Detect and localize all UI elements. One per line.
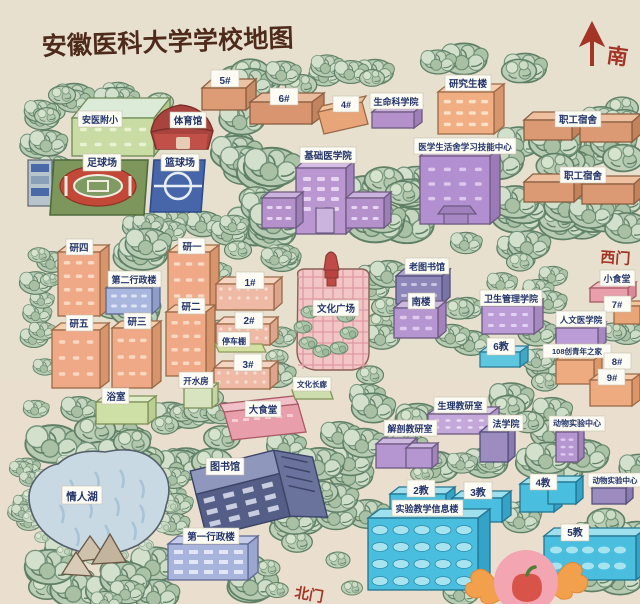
svg-text:开水房: 开水房 xyxy=(183,376,209,386)
svg-text:4#: 4# xyxy=(341,100,351,110)
svg-text:生理教研室: 生理教研室 xyxy=(437,400,482,411)
svg-text:7#: 7# xyxy=(612,300,623,311)
svg-text:3#: 3# xyxy=(242,360,254,371)
svg-text:动物实验中心: 动物实验中心 xyxy=(593,475,638,485)
svg-text:人文医学院: 人文医学院 xyxy=(560,315,603,325)
svg-text:第一行政楼: 第一行政楼 xyxy=(187,531,235,543)
svg-text:研四: 研四 xyxy=(69,243,88,254)
svg-text:9#: 9# xyxy=(607,373,618,384)
svg-text:情人湖: 情人湖 xyxy=(66,490,98,503)
svg-text:研究生楼: 研究生楼 xyxy=(449,78,488,90)
svg-text:实验教学信息楼: 实验教学信息楼 xyxy=(395,503,458,514)
svg-text:2教: 2教 xyxy=(413,484,430,497)
svg-text:生命科学院: 生命科学院 xyxy=(373,96,418,107)
svg-text:5#: 5# xyxy=(219,76,231,87)
svg-text:文化长廊: 文化长廊 xyxy=(297,379,327,389)
svg-text:研一: 研一 xyxy=(182,242,202,253)
svg-text:6教: 6教 xyxy=(493,340,510,353)
svg-text:体育馆: 体育馆 xyxy=(174,115,203,127)
svg-text:3教: 3教 xyxy=(470,486,487,499)
svg-text:动物实验中心: 动物实验中心 xyxy=(553,418,601,428)
svg-text:足球场: 足球场 xyxy=(87,156,117,169)
svg-text:4教: 4教 xyxy=(536,477,551,489)
svg-text:图书馆: 图书馆 xyxy=(210,460,240,473)
svg-text:第二行政楼: 第二行政楼 xyxy=(111,274,156,285)
svg-text:医学生活舍学习技能中心: 医学生活舍学习技能中心 xyxy=(418,142,512,152)
svg-text:5教: 5教 xyxy=(567,526,584,539)
svg-text:小食堂: 小食堂 xyxy=(602,273,630,284)
svg-text:解剖教研室: 解剖教研室 xyxy=(387,423,432,434)
svg-text:西门: 西门 xyxy=(600,248,631,268)
svg-text:文化广场: 文化广场 xyxy=(316,303,356,315)
svg-text:研三: 研三 xyxy=(127,317,147,328)
svg-text:篮球场: 篮球场 xyxy=(164,156,195,169)
svg-text:8#: 8# xyxy=(612,357,623,368)
svg-text:卫生管理学院: 卫生管理学院 xyxy=(484,293,538,304)
svg-text:1#: 1# xyxy=(244,278,256,289)
svg-text:停车棚: 停车棚 xyxy=(222,336,246,346)
svg-text:法学院: 法学院 xyxy=(492,418,519,429)
svg-text:老图书馆: 老图书馆 xyxy=(408,261,445,272)
svg-text:2#: 2# xyxy=(243,316,255,327)
svg-text:108创青年之家: 108创青年之家 xyxy=(552,346,603,356)
svg-text:研二: 研二 xyxy=(181,302,201,313)
svg-text:基础医学院: 基础医学院 xyxy=(303,150,352,162)
svg-text:6#: 6# xyxy=(278,94,290,105)
svg-text:大食堂: 大食堂 xyxy=(249,404,278,416)
svg-text:南: 南 xyxy=(605,43,629,70)
svg-text:职工宿舍: 职工宿舍 xyxy=(564,170,603,182)
svg-text:南楼: 南楼 xyxy=(411,296,431,308)
svg-text:浴室: 浴室 xyxy=(106,391,126,403)
svg-text:职工宿舍: 职工宿舍 xyxy=(559,114,598,126)
svg-text:安医附小: 安医附小 xyxy=(82,114,118,125)
svg-text:研五: 研五 xyxy=(69,319,89,330)
